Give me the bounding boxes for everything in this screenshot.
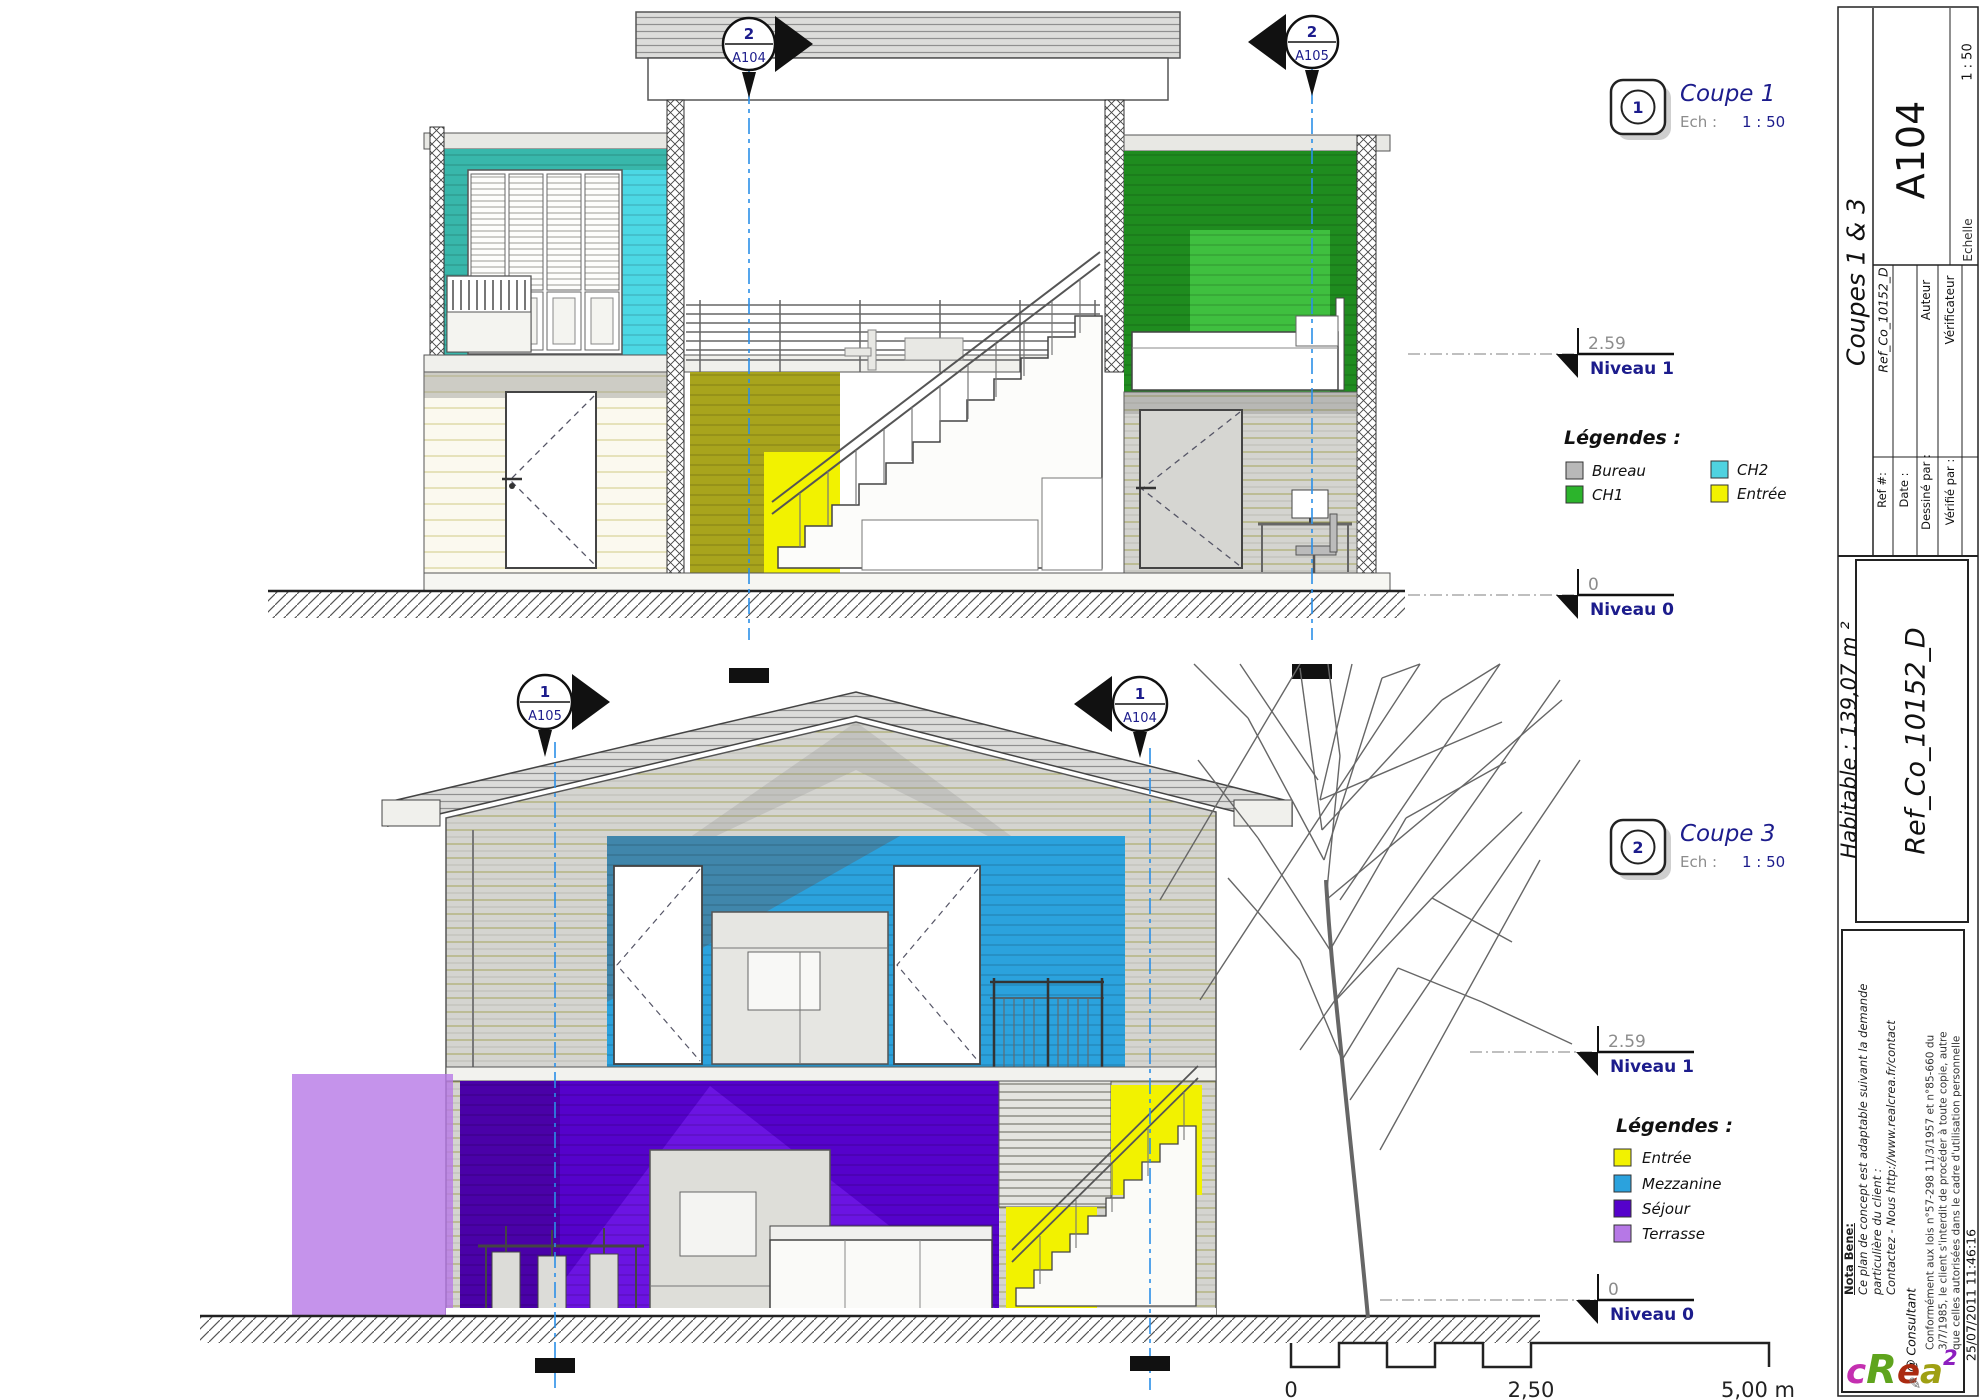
section-bar — [1130, 1356, 1170, 1371]
crea21-logo: cRea2l ✎ — [1846, 1330, 1966, 1392]
legend-label: Terrasse — [1642, 1225, 1705, 1243]
section-marker-top-right: 2 A105 — [1248, 14, 1338, 96]
field-drawn-label: Dessiné par : — [1919, 454, 1933, 530]
coupe3-view-title: 2 Coupe 3 Ech : 1 : 50 — [1611, 820, 1785, 880]
legend-title: Légendes : — [1616, 1115, 1733, 1137]
view-badge: 1 — [1632, 98, 1643, 117]
pencil-icon: ✎ — [1908, 1356, 1921, 1400]
legend-swatch-entree — [1711, 485, 1728, 502]
mezzanine-door-2 — [894, 866, 980, 1064]
bureau-door — [1136, 410, 1242, 568]
legend-swatch-entree — [1614, 1149, 1631, 1166]
coupe1-view-title: 1 Coupe 1 Ech : 1 : 50 — [1611, 80, 1785, 140]
section-bar — [729, 668, 769, 683]
coupe1-left-slab — [424, 133, 672, 149]
legend-swatch-ch1 — [1566, 486, 1583, 503]
legend-coupe3: Légendes : Entrée Mezzanine Séjour Terra… — [1614, 1115, 1733, 1243]
level-name: Niveau 1 — [1610, 1057, 1694, 1077]
coupe1-left-wall-hatch — [430, 127, 444, 365]
view-ech-label: Ech : — [1680, 113, 1717, 131]
coupe3-eave-right — [1234, 800, 1292, 826]
nota-bene-block: Nota Bene: Ce plan de concept est adapta… — [1842, 945, 1898, 1295]
coupe1-right-wall-hatch — [1357, 135, 1376, 573]
legend-swatch-sejour — [1614, 1200, 1631, 1217]
legend-label: Bureau — [1592, 462, 1646, 480]
nota-line3: Contactez - Nous http://www.realcrea.fr/… — [1884, 945, 1898, 1295]
nota-line2: particulière du client : — [1870, 945, 1884, 1295]
entry-door-left — [502, 392, 596, 568]
field-scale-value: 1 : 50 — [1961, 43, 1976, 80]
coupe1-right-slab — [1124, 135, 1390, 151]
marker-num: 1 — [1135, 685, 1145, 703]
scale-end: 5,00 m — [1721, 1378, 1795, 1400]
section-marker-bottom-right: 1 A104 — [1074, 676, 1167, 758]
field-checked-value: Vérificateur — [1943, 275, 1957, 344]
louver-panel — [999, 1081, 1111, 1207]
marker-sheet: A104 — [1123, 711, 1157, 726]
conf-line2: 3/7/1985, le client s'interdit de procéd… — [1938, 950, 1951, 1350]
conf-line3: que celles autorisées dans le cadre d'ut… — [1951, 950, 1964, 1350]
field-checked-label: Vérifié par : — [1943, 459, 1957, 526]
level-flag-c3-n1: 2.59 Niveau 1 — [1470, 1026, 1694, 1077]
scale-zero: 0 — [1284, 1378, 1297, 1400]
legend-label: CH2 — [1737, 461, 1768, 479]
level-name: Niveau 0 — [1590, 600, 1674, 620]
scale-bar: 0 2,50 5,00 m — [1284, 1343, 1795, 1400]
coupe1-floor-slab — [424, 355, 1084, 372]
coupe1-drawing — [268, 12, 1405, 683]
field-date-label: Date : — [1897, 472, 1911, 507]
marker-sheet: A105 — [1295, 49, 1329, 64]
coupe1-roof-band — [648, 58, 1168, 100]
reference-big: Ref_Co_10152_D — [1901, 627, 1932, 854]
legend-label: Entrée — [1642, 1149, 1692, 1167]
legend-swatch-terrasse — [1614, 1225, 1631, 1242]
level-elev: 2.59 — [1608, 1032, 1646, 1052]
nota-line1: Ce plan de concept est adaptable suivant… — [1856, 945, 1870, 1295]
view-scale: 1 : 50 — [1742, 113, 1785, 131]
coupe1-plinth — [424, 573, 1390, 591]
crib — [447, 276, 531, 352]
view-scale: 1 : 50 — [1742, 853, 1785, 871]
level-name: Niveau 1 — [1590, 359, 1674, 379]
coupe1-column1-hatch — [667, 100, 684, 573]
sheet-number: A104 — [1889, 101, 1933, 200]
tree — [1160, 664, 1580, 1318]
habitable-area: Habitable : 139,07 m ² — [1837, 621, 1861, 858]
legal-block: Conformément aux lois n°57-298 11/3/1957… — [1925, 950, 1964, 1350]
section-bar — [535, 1358, 575, 1373]
marker-sheet: A104 — [732, 51, 766, 66]
view-ech-label: Ech : — [1680, 853, 1717, 871]
mezzanine-door-1 — [614, 866, 702, 1064]
marker-num: 2 — [744, 25, 754, 43]
view-name: Coupe 1 — [1680, 81, 1775, 107]
legend-swatch-mezzanine — [1614, 1175, 1631, 1192]
level-flag-c1-n1: 2.59 Niveau 1 — [1408, 328, 1674, 379]
coupe3-eave-left — [382, 800, 440, 826]
logo-letter-a: a — [1920, 1344, 1943, 1400]
coupe3-drawing — [200, 664, 1580, 1390]
sheet-title: Coupes 1 & 3 — [1842, 198, 1871, 366]
legend-swatch-ch2 — [1711, 461, 1728, 478]
field-drawn-value: Auteur — [1919, 280, 1933, 320]
level-elev: 0 — [1608, 1280, 1619, 1300]
field-ref-value: Ref_Co_10152_D — [1876, 267, 1891, 372]
coupe1-column2-hatch — [1105, 100, 1124, 372]
field-scale-label: Echelle — [1961, 218, 1975, 261]
legend-label: CH1 — [1592, 486, 1623, 504]
drawing-sheet: 2 A104 2 A105 1 Coupe 1 Ech : 1 : 50 2.5… — [0, 0, 1980, 1400]
sofa — [770, 1226, 992, 1312]
coupe3-ground-hatch — [200, 1316, 1540, 1343]
level-elev: 0 — [1588, 575, 1599, 595]
level-elev: 2.59 — [1588, 334, 1626, 354]
nota-title: Nota Bene: — [1842, 945, 1856, 1295]
legend-label: Séjour — [1642, 1200, 1691, 1218]
room-terrasse — [292, 1074, 453, 1316]
sheet-canvas: 2 A104 2 A105 1 Coupe 1 Ech : 1 : 50 2.5… — [0, 0, 1980, 1400]
scale-mid: 2,50 — [1508, 1378, 1555, 1400]
legend-label: Entrée — [1737, 485, 1787, 503]
field-ref-label: Ref #: — [1875, 472, 1889, 508]
view-badge: 2 — [1632, 838, 1643, 857]
logo-letter-r: R — [1866, 1342, 1897, 1398]
marker-sheet: A105 — [528, 709, 562, 724]
section-marker-bottom-left: 1 A105 — [518, 674, 610, 757]
marker-num: 2 — [1307, 23, 1317, 41]
legend-label: Mezzanine — [1642, 1175, 1722, 1193]
level-flag-c1-n0: 0 Niveau 0 — [1408, 569, 1674, 620]
legend-title: Légendes : — [1564, 427, 1681, 449]
level-name: Niveau 0 — [1610, 1305, 1694, 1325]
view-name: Coupe 3 — [1680, 821, 1775, 847]
coupe3-floor-slab — [446, 1067, 1216, 1081]
logo-letter-c: c — [1846, 1344, 1866, 1400]
logo-sup-2: 2 — [1943, 1330, 1958, 1386]
conf-line1: Conformément aux lois n°57-298 11/3/1957… — [1925, 950, 1938, 1350]
coupe1-roof-slab — [636, 12, 1180, 58]
coupe1-ground-hatch — [268, 591, 1405, 618]
wardrobe — [712, 912, 888, 1064]
legend-swatch-bureau — [1566, 462, 1583, 479]
marker-num: 1 — [540, 683, 550, 701]
legend-coupe1: Légendes : Bureau CH1 CH2 Entrée — [1564, 427, 1787, 504]
